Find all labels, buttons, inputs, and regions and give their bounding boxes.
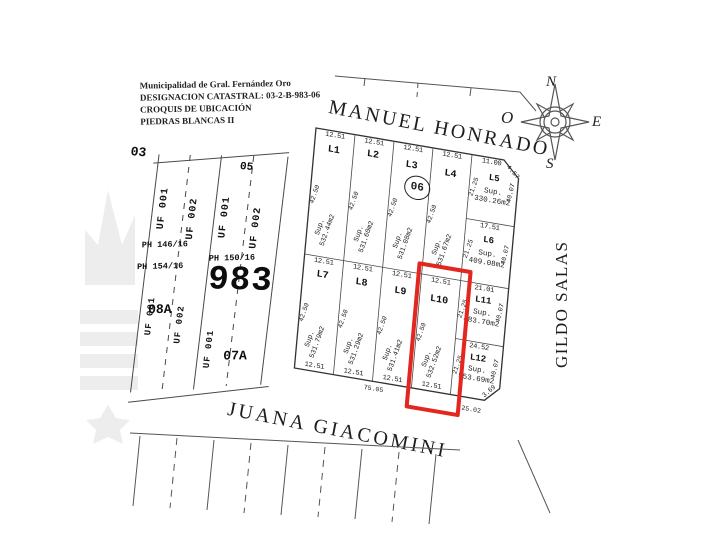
left-block-bottom-edge [128,386,269,403]
side-measure: 42.50 [337,308,350,329]
ph-label: PH 146/16 [142,239,188,250]
lot-name: L3 [392,157,432,175]
block-corner-label-03: 03 [130,144,147,160]
lot-area: Sup.531.67m2 [425,221,457,276]
side-measure: 42.50 [386,197,399,218]
main-parcel-block: 06 12.51 L1 42.50 Sup.532.44m2 12.51 L2 … [294,128,520,403]
side-measure: 42.50 [347,190,360,211]
lot-L11: 21.01 L11 21.25 40.07 Sup.483.70m2 [455,281,508,347]
lot-name: L10 [419,292,459,310]
uf-label: UF 002 [248,182,267,249]
side-measure: 42.50 [376,315,389,336]
lot-name: L4 [430,166,470,184]
lot-L6: 17.51 L6 21.25 40.07 Sup.409.08m2 [461,219,515,289]
front-measure: 12.51 [393,142,433,157]
lot-area: Sup.531.60m2 [347,208,379,263]
lot-name: L1 [314,142,354,160]
lot-name: L7 [303,267,343,285]
uf-label: UF 001 [217,172,236,239]
side-measure: 42.50 [298,302,311,323]
front-measure: 12.51 [315,129,355,144]
side-measure: 42.50 [415,322,428,343]
croquis-map: Municipalidad de Gral. Fernández Oro DES… [0,0,720,540]
uf-label: UF 002 [172,285,189,344]
lot-name: L8 [341,275,381,293]
lot-L12: 24.52 L12 21.25 40.07 Sup.553.69m2 [450,339,503,403]
lot-name: L9 [380,283,420,301]
compass-rose [512,70,604,174]
uf-label: UF 001 [202,306,219,369]
street-name-gildo-salas: GILDO SALAS [552,228,572,368]
parcel-line [130,154,160,392]
uf-label: UF 002 [185,173,204,240]
parcel-label-08A: 08A [148,302,172,317]
south-block-outline [118,418,568,540]
parcel-label-07A: 07A [223,348,247,363]
lot-area: Sup.531.08m2 [386,215,418,270]
lot-area: Sup.532.44m2 [308,201,340,256]
uf-label: UF 001 [156,163,175,230]
parcel-label-05: 05 [239,161,254,174]
block-number-983: 983 [207,261,274,301]
side-measure: 42.50 [308,184,321,205]
side-measure: 42.50 [425,204,438,225]
ph-label: PH 154/16 [137,261,183,272]
left-parcel-block: 03 UF 001 UF 002 PH 146/16 PH 154/16 UF … [99,140,298,415]
block-front-right: 25.02 [461,405,481,415]
